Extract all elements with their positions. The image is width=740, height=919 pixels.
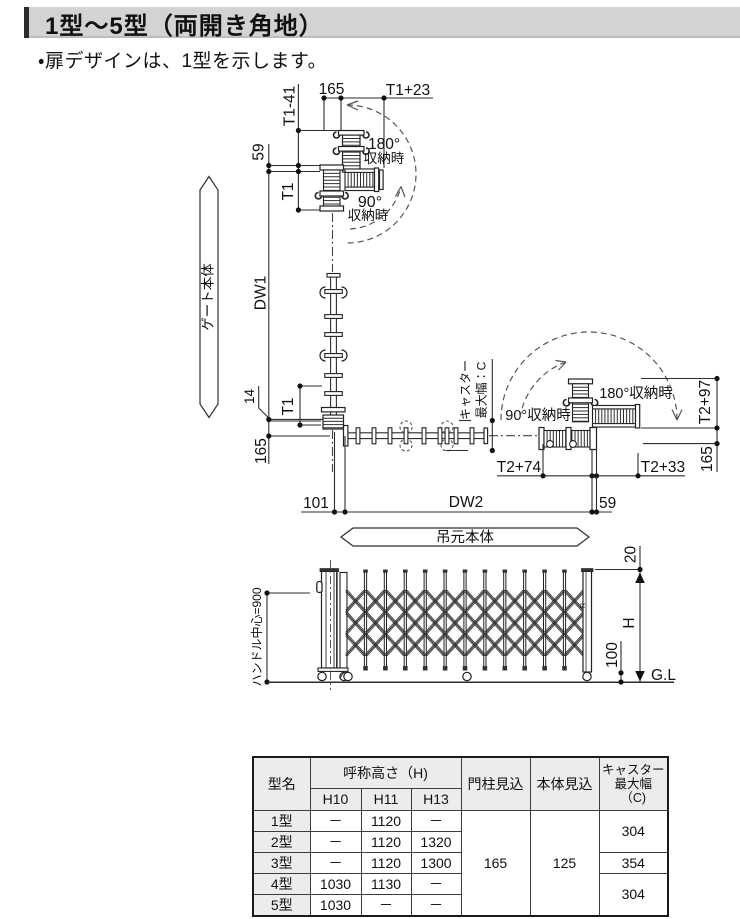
svg-text:101: 101 — [303, 495, 329, 512]
svg-text:59: 59 — [251, 143, 268, 160]
svg-text:キャスター: キャスター — [459, 360, 473, 420]
svg-text:ハンドル中心=900: ハンドル中心=900 — [249, 587, 264, 686]
svg-text:T1+23: T1+23 — [386, 82, 430, 99]
svg-text:吊元本体: 吊元本体 — [436, 529, 494, 546]
svg-text:T2+33: T2+33 — [641, 459, 685, 476]
svg-text:165: 165 — [699, 446, 716, 472]
svg-text:収納時: 収納時 — [364, 151, 405, 166]
svg-text:180°収納時: 180°収納時 — [599, 385, 673, 402]
svg-text:DW2: DW2 — [449, 494, 483, 511]
svg-text:100: 100 — [604, 642, 621, 668]
svg-text:165: 165 — [253, 438, 270, 464]
svg-text:G.L: G.L — [651, 667, 676, 684]
svg-text:T2+74: T2+74 — [497, 459, 542, 476]
svg-text:最大幅：C: 最大幅：C — [474, 361, 489, 418]
svg-text:165: 165 — [319, 81, 345, 98]
svg-text:59: 59 — [599, 495, 616, 512]
svg-text:14: 14 — [242, 389, 257, 405]
svg-text:収納時: 収納時 — [348, 208, 389, 223]
svg-text:T1: T1 — [280, 397, 297, 415]
svg-text:T1: T1 — [280, 182, 297, 200]
svg-text:20: 20 — [623, 546, 640, 564]
svg-text:H: H — [621, 617, 638, 628]
svg-text:R: R — [580, 603, 587, 608]
svg-text:DW1: DW1 — [253, 276, 270, 310]
svg-text:T2+97: T2+97 — [697, 380, 714, 424]
svg-text:ゲート本体: ゲート本体 — [201, 263, 216, 331]
svg-text:T1-41: T1-41 — [282, 86, 299, 127]
svg-text:90°収納時: 90°収納時 — [505, 407, 570, 424]
